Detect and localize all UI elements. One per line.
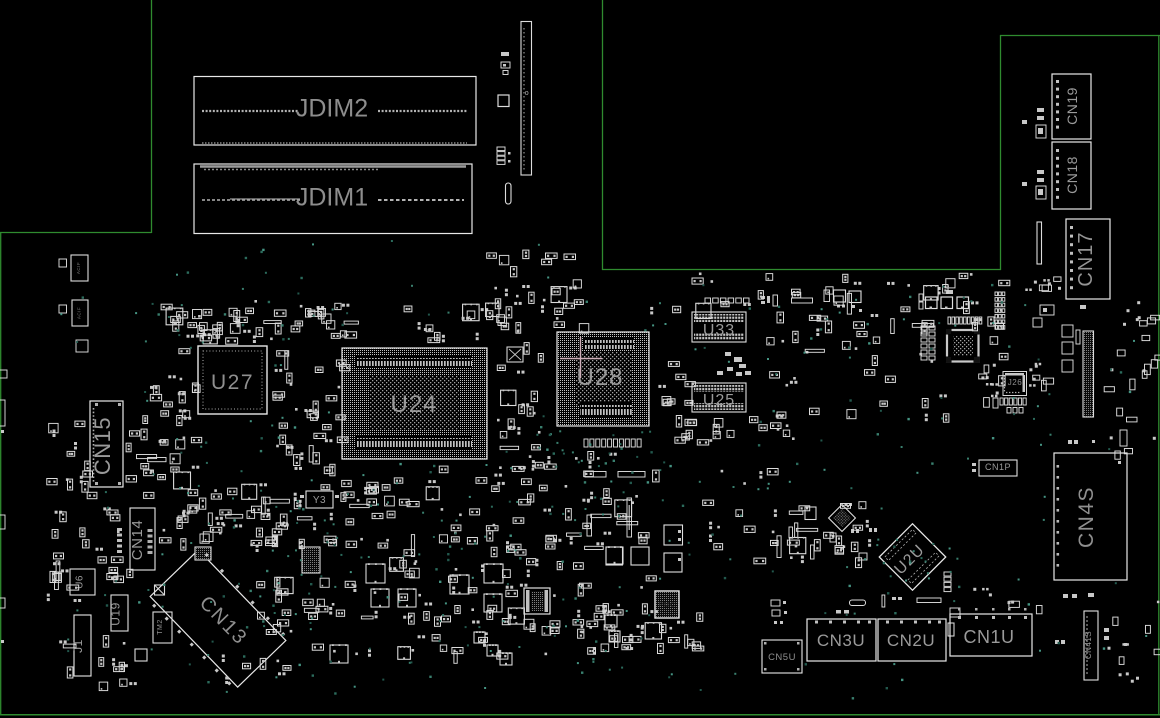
svg-text:U27: U27 xyxy=(211,371,254,394)
svg-text:TM2: TM2 xyxy=(157,619,164,635)
svg-text:PMC: PMC xyxy=(658,602,675,609)
svg-text:JDIM2: JDIM2 xyxy=(296,95,368,123)
svg-text:CN19: CN19 xyxy=(1064,87,1080,125)
svg-text:U28: U28 xyxy=(576,364,623,391)
svg-text:J1: J1 xyxy=(71,639,85,653)
svg-text:CN17: CN17 xyxy=(1075,231,1097,286)
svg-text:JDIM1: JDIM1 xyxy=(296,184,368,212)
svg-text:ACIF: ACIF xyxy=(76,262,81,274)
svg-text:Y3: Y3 xyxy=(313,495,326,506)
svg-text:CN41S: CN41S xyxy=(1084,631,1093,659)
svg-text:o: o xyxy=(525,90,529,97)
svg-text:U24: U24 xyxy=(390,391,437,418)
svg-text:U25: U25 xyxy=(703,392,735,409)
svg-text:J26: J26 xyxy=(1008,378,1022,387)
svg-text:ACIF: ACIF xyxy=(77,307,82,319)
svg-text:CN5U: CN5U xyxy=(768,652,796,663)
svg-text:CN14: CN14 xyxy=(129,520,146,560)
svg-text:U33: U33 xyxy=(703,322,735,339)
svg-text:CN3U: CN3U xyxy=(817,631,865,650)
svg-text:CN18: CN18 xyxy=(1064,156,1080,194)
svg-text:CN1P: CN1P xyxy=(985,462,1011,472)
svg-text:CN2U: CN2U xyxy=(887,631,935,650)
svg-text:U19: U19 xyxy=(109,602,123,626)
svg-text:CN1U: CN1U xyxy=(963,627,1014,647)
svg-text:CN4S: CN4S xyxy=(1075,486,1098,548)
svg-text:CN15: CN15 xyxy=(90,417,115,475)
